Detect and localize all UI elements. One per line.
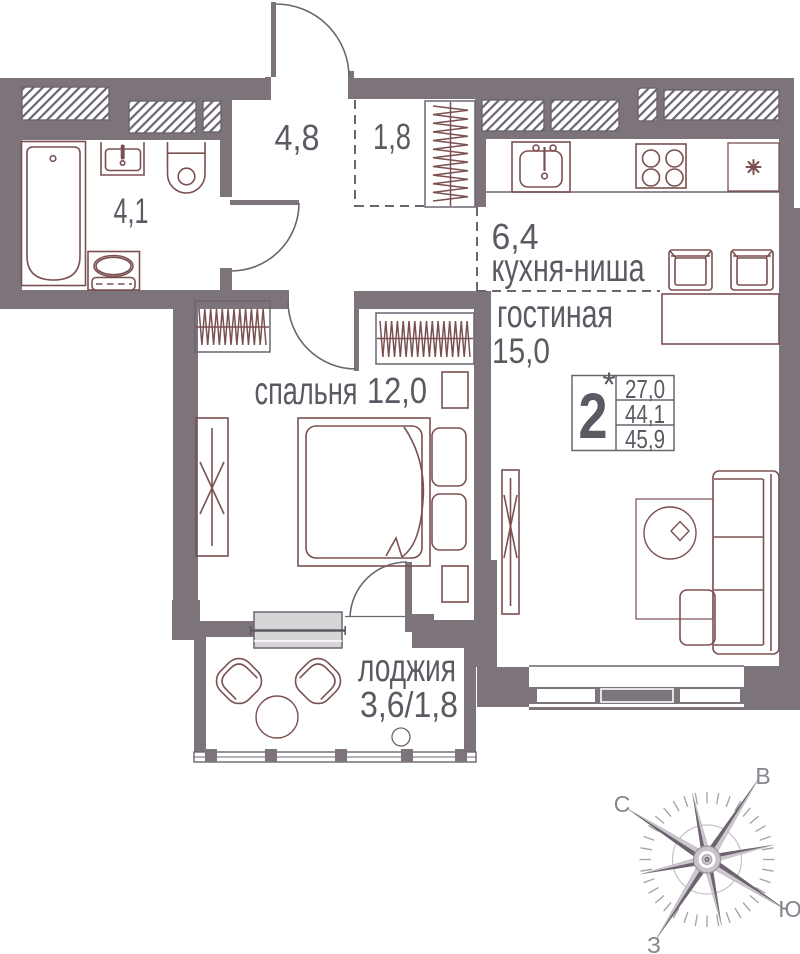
svg-text:В: В: [755, 763, 770, 789]
svg-text:4,1: 4,1: [114, 192, 149, 231]
svg-text:С: С: [614, 791, 631, 817]
svg-text:12,0: 12,0: [367, 370, 427, 411]
svg-text:45,9: 45,9: [625, 424, 665, 454]
svg-text:кухня-ниша: кухня-ниша: [492, 247, 645, 290]
svg-text:1,8: 1,8: [373, 116, 411, 157]
svg-text:15,0: 15,0: [492, 332, 550, 371]
svg-text:Ю: Ю: [778, 896, 800, 922]
svg-text:гостиная: гостиная: [497, 293, 613, 336]
svg-text:*: *: [602, 366, 615, 404]
svg-text:3,6/1,8: 3,6/1,8: [360, 684, 458, 725]
svg-text:4,8: 4,8: [275, 117, 320, 158]
svg-text:З: З: [647, 932, 661, 954]
svg-text:спальня: спальня: [255, 370, 358, 413]
